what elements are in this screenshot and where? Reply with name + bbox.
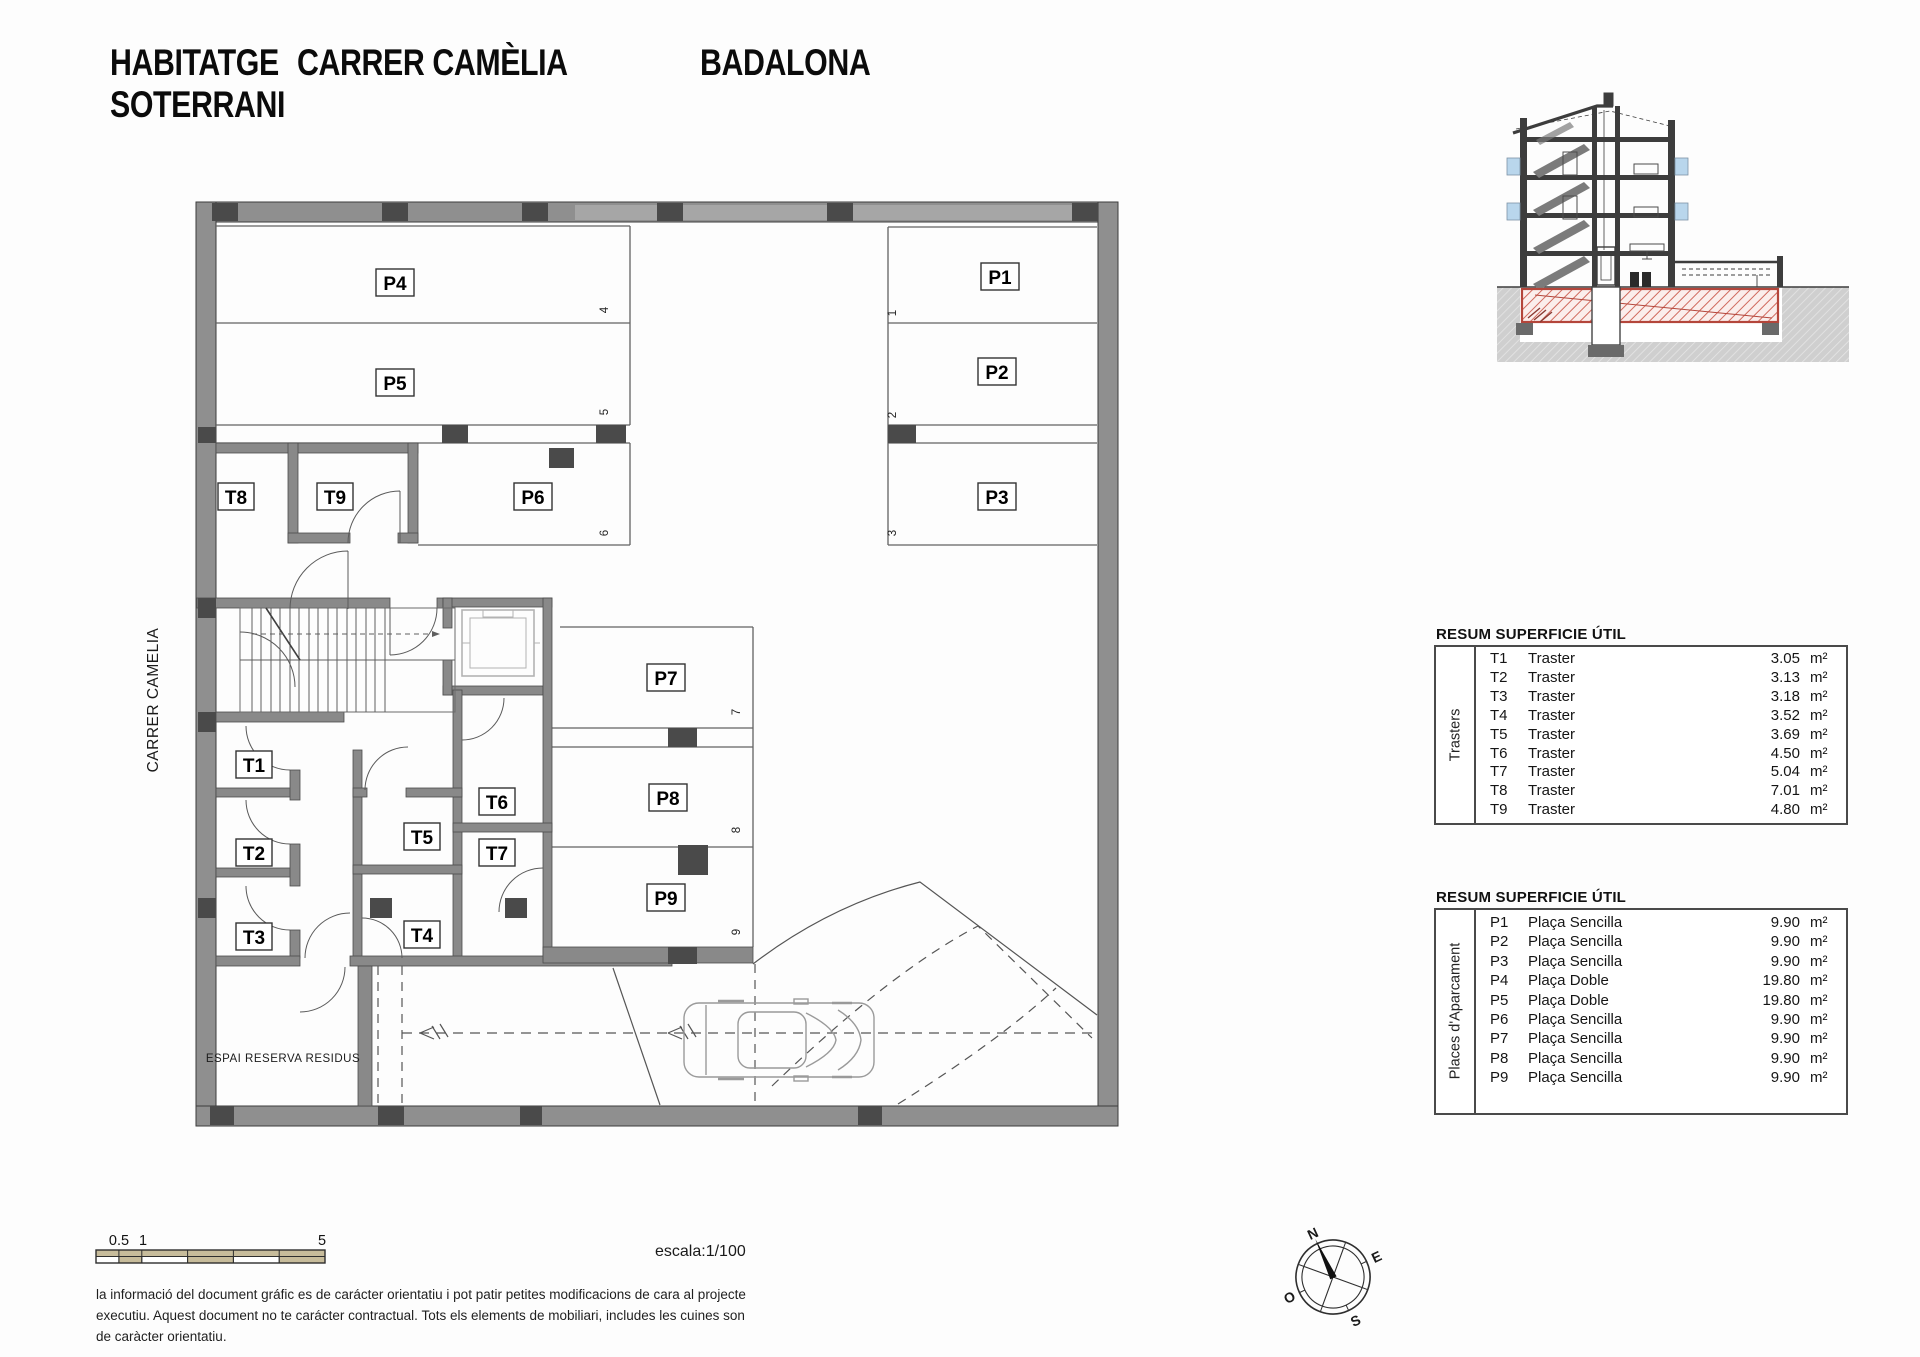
staircase [240, 608, 455, 712]
street-name-label: CARRER CAMELIA [145, 627, 162, 772]
svg-text:2: 2 [887, 412, 899, 418]
svg-text:3: 3 [887, 530, 899, 536]
table-parking-title: RESUM SUPERFICIE ÚTIL [1436, 889, 1848, 906]
door-swings [240, 491, 543, 1012]
table-row: P4Plaça Doble19.80m² [1476, 971, 1840, 990]
stall-numbers: 4 5 6 1 2 3 7 8 9 [599, 306, 899, 935]
svg-text:6: 6 [599, 530, 611, 536]
stall-label-p8: P8 [656, 789, 679, 810]
scale-tick-5: 5 [318, 1233, 326, 1249]
stall-label-p7: P7 [654, 669, 677, 690]
stall-label-p2: P2 [985, 363, 1008, 384]
svg-text:8: 8 [731, 827, 743, 833]
table-row: P6Plaça Sencilla9.90m² [1476, 1010, 1840, 1029]
title-city: BADALONA [700, 42, 870, 84]
scale-tick-05: 0.5 [109, 1233, 129, 1249]
section-stairs [1533, 122, 1590, 290]
svg-text:1: 1 [887, 310, 899, 316]
table-row: T5Traster3.69m² [1476, 726, 1840, 745]
disclaimer-line1: la informació del document gráfic es de … [96, 1285, 746, 1306]
drawing-sheet: { "header": { "project_line1": "HABITATG… [0, 0, 1920, 1357]
ramp-and-lane [378, 882, 1097, 1105]
table-row: T1Traster3.05m² [1476, 650, 1840, 669]
stall-label-p4: P4 [383, 274, 407, 295]
table-row: P3Plaça Sencilla9.90m² [1476, 952, 1840, 971]
compass-north-label: N [1305, 1224, 1321, 1243]
table-row: T3Traster3.18m² [1476, 688, 1840, 707]
title-project-line2: SOTERRANI [110, 84, 285, 126]
svg-text:4: 4 [599, 306, 611, 313]
table-row: T4Traster3.52m² [1476, 707, 1840, 726]
table-row: T6Traster4.50m² [1476, 745, 1840, 764]
building-section [1497, 93, 1849, 362]
floorplan: P4 P5 P6 P7 P8 P9 P1 P2 P3 T8 T9 T1 T2 T… [145, 202, 1118, 1126]
svg-text:5: 5 [599, 409, 611, 415]
room-label-t1: T1 [243, 756, 266, 777]
disclaimer: la informació del document gráfic es de … [96, 1285, 746, 1348]
room-label-t3: T3 [243, 928, 265, 949]
room-label-t5: T5 [411, 828, 434, 849]
table-row: P9Plaça Sencilla9.90m² [1476, 1068, 1840, 1087]
scale-text: escala:1/100 [655, 1243, 746, 1261]
table-parking: RESUM SUPERFICIE ÚTIL Places d'Aparcamen… [1434, 889, 1848, 1115]
table-row: P8Plaça Sencilla9.90m² [1476, 1049, 1840, 1068]
compass-rose: N E S O [1261, 1204, 1405, 1351]
elevator [462, 610, 540, 676]
room-label-t7: T7 [486, 844, 508, 865]
stall-label-p9: P9 [654, 889, 677, 910]
table-row: P5Plaça Doble19.80m² [1476, 991, 1840, 1010]
title-street: CARRER CAMÈLIA [297, 42, 568, 84]
room-label-t6: T6 [486, 793, 508, 814]
room-label-t8: T8 [225, 488, 247, 509]
svg-text:9: 9 [731, 929, 743, 935]
table-row: T9Traster4.80m² [1476, 801, 1840, 820]
table-row: T7Traster5.04m² [1476, 763, 1840, 782]
room-label-t2: T2 [243, 844, 265, 865]
disclaimer-line3: de caràcter orientatiu. [96, 1327, 746, 1348]
table-row: P2Plaça Sencilla9.90m² [1476, 932, 1840, 951]
compass-east-label: E [1369, 1247, 1384, 1265]
title-project-line1: HABITATGE [110, 42, 279, 84]
table-row: T2Traster3.13m² [1476, 669, 1840, 688]
disclaimer-line2: executiu. Aquest document no te carácter… [96, 1306, 746, 1327]
table-trasters: RESUM SUPERFICIE ÚTIL Trasters T1Traster… [1434, 626, 1848, 825]
table-trasters-side-label: Trasters [1436, 647, 1476, 823]
car-plan-view [684, 999, 874, 1081]
room-label-t4: T4 [411, 926, 434, 947]
svg-text:7: 7 [731, 709, 743, 715]
stall-label-p1: P1 [988, 268, 1012, 289]
compass-west-label: O [1281, 1288, 1298, 1307]
stall-label-p3: P3 [985, 488, 1008, 509]
basement-highlight [1522, 289, 1778, 322]
scale-tick-1: 1 [139, 1233, 147, 1249]
table-row: P7Plaça Sencilla9.90m² [1476, 1029, 1840, 1048]
stall-label-p6: P6 [521, 488, 544, 509]
compass-south-label: S [1348, 1311, 1363, 1329]
room-label-t9: T9 [324, 488, 346, 509]
stall-label-p5: P5 [383, 374, 407, 395]
table-trasters-title: RESUM SUPERFICIE ÚTIL [1436, 626, 1848, 643]
table-row: P1Plaça Sencilla9.90m² [1476, 913, 1840, 932]
table-row: T8Traster7.01m² [1476, 782, 1840, 801]
residus-room-label: ESPAI RESERVA RESIDUS [206, 1053, 360, 1065]
table-parking-side-label: Places d'Aparcament [1436, 910, 1476, 1113]
scale-bar: 0.5 1 5 [96, 1233, 326, 1263]
